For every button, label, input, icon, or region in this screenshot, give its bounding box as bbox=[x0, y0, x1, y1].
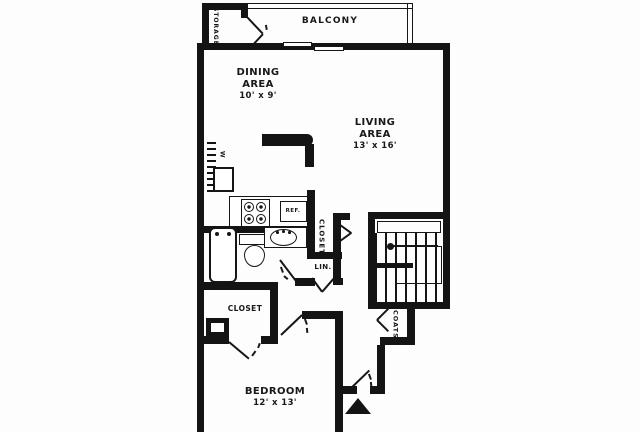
stairs-wall-north bbox=[368, 212, 450, 219]
wall-bedroom-north-left bbox=[197, 336, 229, 344]
stove bbox=[241, 199, 270, 227]
bedroom-name: BEDROOM bbox=[235, 386, 315, 398]
room-label-storage: STORAGE bbox=[212, 6, 219, 46]
stairs-wall-west bbox=[368, 212, 375, 309]
stairs-wall-south bbox=[368, 302, 450, 309]
bedroom-door-swing-dash bbox=[306, 328, 308, 333]
stove-burner bbox=[256, 202, 266, 212]
room-label-linen: LIN. bbox=[311, 263, 335, 271]
bedroom-door-swing-dash bbox=[304, 319, 308, 325]
kitchen-bar-counter-side bbox=[305, 144, 314, 167]
bedroom-dimensions: 12' x 13' bbox=[235, 398, 315, 408]
room-label-bedroom-closet: CLOSET bbox=[224, 305, 266, 314]
entry-door-swing-dash bbox=[370, 382, 372, 387]
storage-door-swing-dash bbox=[265, 25, 268, 30]
room-label-living: LIVING AREA 13' x 16' bbox=[335, 117, 415, 151]
dining-dimensions: 10' x 9' bbox=[218, 91, 298, 101]
bedroom-closet-door-leaf bbox=[228, 341, 249, 359]
room-label-balcony: BALCONY bbox=[280, 16, 380, 27]
toilet-bowl bbox=[244, 245, 265, 267]
bath-door-swing-dash bbox=[280, 267, 284, 273]
exterior-wall-right bbox=[443, 43, 450, 309]
floor-plan: BALCONY STORAGE DINING AREA 10' x 9' LIV… bbox=[0, 0, 640, 432]
closet-nook-box bbox=[206, 318, 229, 337]
tub-faucet-dot bbox=[215, 232, 219, 236]
bedroom-closet-door-swing-dash bbox=[251, 350, 256, 356]
sliding-door-panel-1 bbox=[283, 42, 312, 47]
wall-bath-south bbox=[197, 282, 278, 290]
sink-faucet-dot bbox=[282, 230, 285, 233]
wall-bedroom-east bbox=[335, 311, 343, 432]
balcony-railing-top bbox=[248, 3, 413, 9]
entry-door-leaf bbox=[346, 370, 370, 393]
sink-faucet-dot bbox=[276, 231, 279, 234]
room-label-dining: DINING AREA 10' x 9' bbox=[218, 67, 298, 101]
refrigerator-label: REF. bbox=[281, 208, 305, 214]
wall-hallcloset-stub-top bbox=[333, 213, 350, 220]
wall-kitchen-east bbox=[307, 190, 315, 255]
wall-bedroom-closet-east bbox=[270, 282, 278, 340]
room-label-coats: COATS bbox=[391, 307, 399, 341]
entry-door-jamb-right bbox=[370, 386, 385, 394]
storage-door-leaf bbox=[246, 16, 263, 34]
tub-faucet-dot bbox=[227, 232, 231, 236]
wall-entry-step bbox=[377, 345, 385, 388]
stairs-landing bbox=[377, 221, 441, 233]
dining-name-line2: AREA bbox=[218, 79, 298, 91]
wall-bedroom-north-right bbox=[261, 336, 278, 344]
balcony-railing-right bbox=[407, 3, 413, 45]
room-label-bedroom: BEDROOM 12' x 13' bbox=[235, 386, 315, 408]
water-heater-box bbox=[213, 167, 234, 192]
living-name-line1: LIVING bbox=[335, 117, 415, 129]
entry-arrow bbox=[345, 398, 371, 414]
entry-door-swing-dash bbox=[368, 374, 372, 380]
bathroom-sink bbox=[270, 229, 297, 246]
stove-burner bbox=[256, 214, 266, 224]
stairs-handrail bbox=[375, 263, 413, 268]
room-label-hall-closet: CLOSET bbox=[317, 217, 325, 257]
coats-door-fold-2 bbox=[376, 319, 389, 332]
bedroom-closet-door-swing-dash bbox=[257, 343, 260, 348]
bathtub bbox=[209, 227, 237, 283]
exterior-wall-left bbox=[197, 43, 204, 432]
living-dimensions: 13' x 16' bbox=[335, 141, 415, 151]
washer-label: W bbox=[218, 149, 225, 161]
bedroom-door-leaf bbox=[280, 314, 302, 335]
sink-faucet-dot bbox=[288, 231, 291, 234]
stove-burner bbox=[244, 202, 254, 212]
bath-door-swing-dash bbox=[283, 275, 288, 280]
linen-door-fold-2 bbox=[321, 278, 334, 293]
refrigerator: REF. bbox=[280, 201, 307, 222]
stairs-direction-line bbox=[393, 245, 438, 247]
dining-name-line1: DINING bbox=[218, 67, 298, 79]
stove-burner bbox=[244, 214, 254, 224]
living-name-line2: AREA bbox=[335, 129, 415, 141]
sliding-door-panel-2 bbox=[314, 46, 344, 51]
